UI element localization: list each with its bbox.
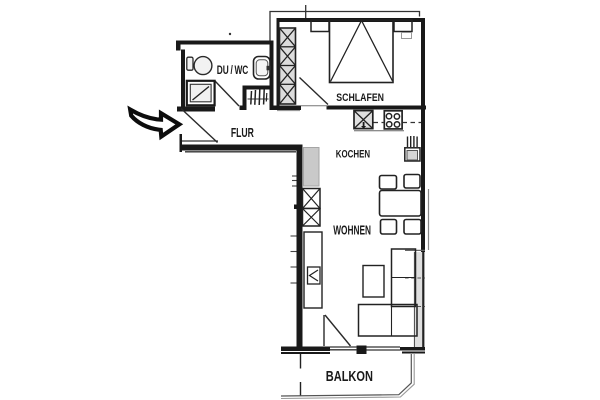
svg-text:WOHNEN: WOHNEN bbox=[333, 222, 371, 237]
svg-text:BALKON: BALKON bbox=[326, 369, 373, 385]
svg-text:KOCHEN: KOCHEN bbox=[336, 148, 370, 160]
svg-text:SCHLAFEN: SCHLAFEN bbox=[336, 92, 384, 104]
svg-text:DU / WC: DU / WC bbox=[217, 63, 249, 77]
svg-text:FLUR: FLUR bbox=[231, 126, 254, 140]
